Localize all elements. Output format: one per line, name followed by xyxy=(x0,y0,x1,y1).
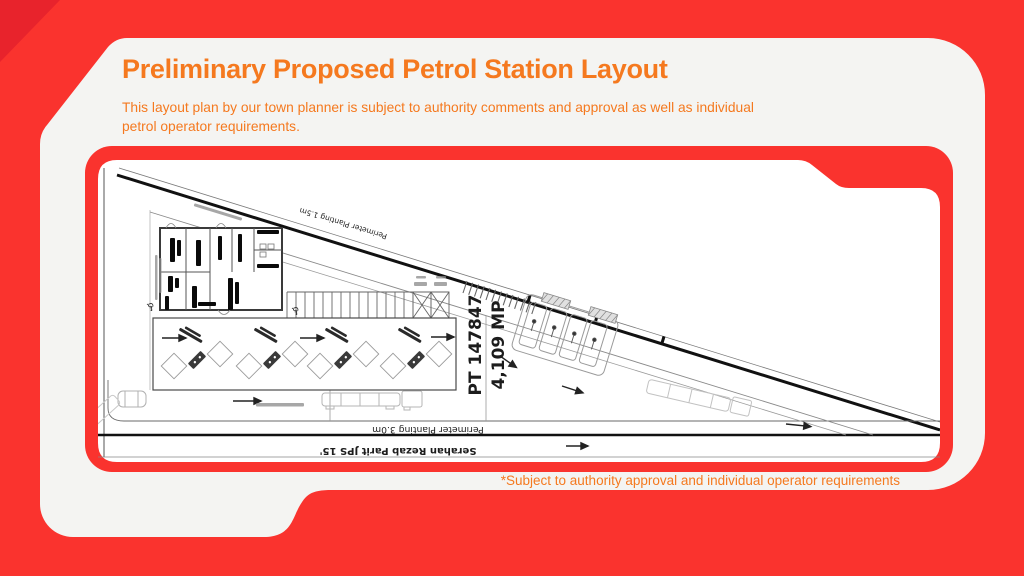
car xyxy=(118,391,146,407)
station-building xyxy=(160,224,282,315)
flow-arrow-icon xyxy=(300,335,324,341)
site-plan-drawing: ♿ ♿ xyxy=(98,160,940,462)
slide-subtitle: This layout plan by our town planner is … xyxy=(122,99,902,136)
subtitle-line-2: petrol operator requirements. xyxy=(122,118,902,137)
fuel-dispensers xyxy=(188,351,425,369)
traffic-flow-arrows xyxy=(162,334,811,449)
flow-arrow-icon xyxy=(786,421,812,430)
footnote: *Subject to authority approval and indiv… xyxy=(501,472,900,490)
tanker-truck xyxy=(646,377,752,416)
lot-number-label: PT 147847 xyxy=(466,295,486,396)
lot-area-label: 4,109 MP xyxy=(489,300,509,389)
disabled-parking-icon: ♿ xyxy=(145,300,155,313)
flow-arrow-icon xyxy=(431,334,454,340)
tanker-truck xyxy=(322,391,422,410)
slide-title: Preliminary Proposed Petrol Station Layo… xyxy=(122,54,882,85)
corner-accent-triangle xyxy=(0,0,60,62)
flow-arrow-icon xyxy=(566,443,588,449)
slide: { "slide": { "title": "Preliminary Propo… xyxy=(0,0,1024,576)
pump-canopy xyxy=(153,318,456,390)
subtitle-line-1: This layout plan by our town planner is … xyxy=(122,99,902,118)
flow-arrow-icon xyxy=(162,335,186,341)
drain-reserve-label: Serahan Rezab Parit JPS 15' xyxy=(320,445,477,456)
site-boundary-lines xyxy=(98,168,940,457)
perimeter-planting-rear-label: Perimeter Planting 3.0m xyxy=(372,424,484,435)
pump-islands xyxy=(161,341,451,378)
pump-terminal-label-blobs xyxy=(179,324,424,343)
disabled-parking-icon: ♿ xyxy=(290,304,300,317)
flow-arrow-icon xyxy=(561,383,584,396)
parking-bays xyxy=(287,292,449,318)
